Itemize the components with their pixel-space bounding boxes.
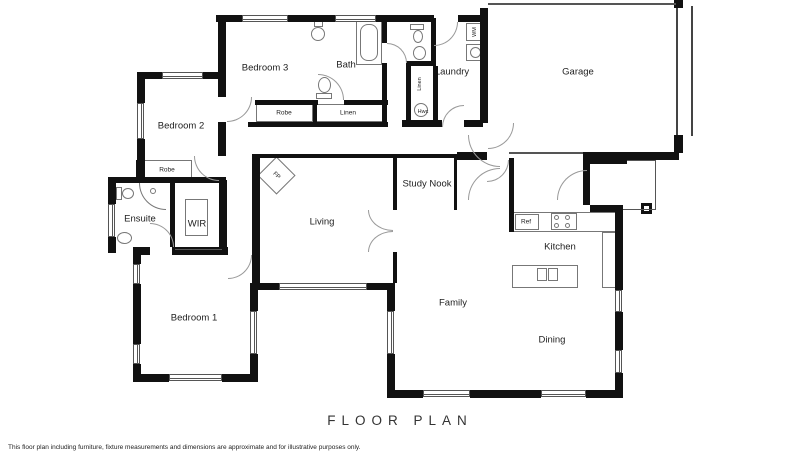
closet-label-hwc: Hwc bbox=[418, 109, 429, 115]
wall-segment bbox=[218, 15, 226, 97]
door-arc bbox=[227, 97, 252, 122]
garage-door bbox=[676, 6, 693, 136]
door-arc bbox=[368, 210, 393, 231]
room-label-study-nook: Study Nook bbox=[402, 179, 451, 190]
sink-icon bbox=[537, 268, 547, 281]
wall-segment bbox=[586, 390, 623, 398]
wall-segment bbox=[615, 205, 623, 290]
wall-segment bbox=[394, 158, 397, 196]
wall-segment bbox=[133, 374, 169, 382]
wall-segment bbox=[433, 66, 438, 122]
wall-segment bbox=[250, 354, 258, 382]
wall-segment bbox=[137, 79, 145, 103]
wall-segment bbox=[470, 390, 541, 398]
wall-segment bbox=[382, 18, 387, 43]
thin-line bbox=[623, 209, 656, 210]
wall-segment bbox=[137, 72, 162, 79]
wall-segment bbox=[255, 100, 318, 105]
wall-segment bbox=[133, 255, 141, 264]
window bbox=[137, 103, 144, 139]
window bbox=[108, 204, 115, 237]
wall-segment bbox=[108, 183, 116, 204]
wall-segment bbox=[219, 180, 227, 250]
thin-line bbox=[627, 160, 656, 161]
basin-icon bbox=[413, 46, 426, 60]
burner-icon bbox=[554, 215, 559, 220]
door-arc bbox=[434, 22, 458, 46]
wall-segment bbox=[392, 390, 423, 398]
basin-icon bbox=[117, 232, 132, 244]
closet-label-robe: Robe bbox=[276, 110, 292, 117]
basin-icon bbox=[311, 27, 325, 41]
wall-segment bbox=[393, 252, 397, 283]
wall-segment bbox=[288, 15, 335, 22]
fireplace-label: FP bbox=[272, 171, 282, 181]
door-arc bbox=[368, 231, 393, 252]
wall-segment bbox=[387, 283, 395, 311]
bathtub-inner-icon bbox=[360, 24, 378, 61]
closet-label-linen: Linen bbox=[340, 110, 356, 117]
wall-segment bbox=[252, 158, 260, 283]
shower-drain-icon bbox=[150, 188, 156, 194]
room-label-wir: WIR bbox=[188, 219, 206, 230]
door-arc bbox=[318, 74, 344, 100]
burner-icon bbox=[554, 223, 559, 228]
wall-segment bbox=[136, 160, 142, 178]
room-label-garage: Garage bbox=[562, 67, 594, 78]
window bbox=[250, 311, 257, 354]
room-label-family: Family bbox=[439, 298, 467, 309]
wall-segment bbox=[313, 105, 317, 122]
wall-segment bbox=[252, 154, 457, 158]
toilet-bowl-icon bbox=[122, 188, 134, 199]
window bbox=[335, 15, 376, 22]
room-label-dining: Dining bbox=[539, 335, 566, 346]
wall-segment bbox=[509, 158, 514, 232]
window bbox=[162, 72, 203, 79]
window bbox=[423, 390, 470, 397]
thin-line bbox=[175, 249, 222, 250]
wall-segment bbox=[674, 135, 683, 153]
door-arc bbox=[468, 135, 500, 167]
wall-segment bbox=[382, 63, 387, 122]
wall-segment bbox=[454, 158, 457, 210]
window bbox=[615, 350, 622, 373]
burner-icon bbox=[565, 215, 570, 220]
door-arc bbox=[387, 43, 407, 63]
disclaimer-text: This floor plan including furniture, fix… bbox=[8, 444, 361, 451]
wall-segment bbox=[588, 159, 627, 164]
window bbox=[242, 15, 288, 22]
floor-plan: FP Bedroom 3 Bath Laundry Garage Bedroom… bbox=[0, 0, 800, 457]
door-arc bbox=[557, 170, 587, 200]
burner-icon bbox=[565, 223, 570, 228]
window bbox=[387, 311, 394, 354]
window bbox=[541, 390, 586, 397]
door-arc bbox=[468, 168, 500, 200]
window bbox=[169, 374, 222, 381]
fridge-label: Ref bbox=[521, 219, 531, 226]
toilet-bowl-icon bbox=[413, 30, 423, 43]
room-label-bedroom-3: Bedroom 3 bbox=[242, 63, 288, 74]
room-label-laundry: Laundry bbox=[435, 67, 469, 78]
thin-line bbox=[488, 3, 676, 5]
wall-segment bbox=[218, 122, 226, 156]
closet-label-linen: Linen bbox=[417, 77, 423, 90]
window bbox=[615, 290, 622, 312]
wall-segment bbox=[615, 312, 623, 350]
thin-line bbox=[655, 160, 656, 210]
wall-segment bbox=[133, 284, 141, 344]
wardrobe-shelf bbox=[185, 199, 208, 236]
wall-segment bbox=[406, 66, 411, 122]
wall-segment bbox=[255, 283, 279, 290]
closet-label-robe: Robe bbox=[159, 167, 175, 174]
wall-segment bbox=[133, 247, 150, 255]
wall-segment bbox=[248, 122, 388, 127]
window bbox=[279, 283, 367, 290]
wall-segment bbox=[458, 15, 482, 22]
wall-segment bbox=[402, 120, 442, 127]
sink-icon bbox=[548, 268, 558, 281]
room-label-kitchen: Kitchen bbox=[544, 242, 576, 253]
window bbox=[133, 264, 140, 284]
washing-machine-label: WM bbox=[472, 27, 478, 37]
page-title: FLOOR PLAN bbox=[0, 413, 800, 428]
room-label-living: Living bbox=[310, 217, 335, 228]
room-label-bedroom-2: Bedroom 2 bbox=[158, 121, 204, 132]
door-arc bbox=[442, 105, 464, 127]
wall-segment bbox=[108, 237, 116, 253]
thin-line bbox=[509, 152, 583, 154]
room-label-bath: Bath bbox=[336, 60, 356, 71]
room-label-bedroom-1: Bedroom 1 bbox=[171, 313, 217, 324]
fireplace-icon: FP bbox=[257, 156, 295, 194]
door-arc bbox=[228, 255, 252, 279]
window bbox=[133, 344, 140, 364]
wall-segment bbox=[480, 8, 488, 123]
